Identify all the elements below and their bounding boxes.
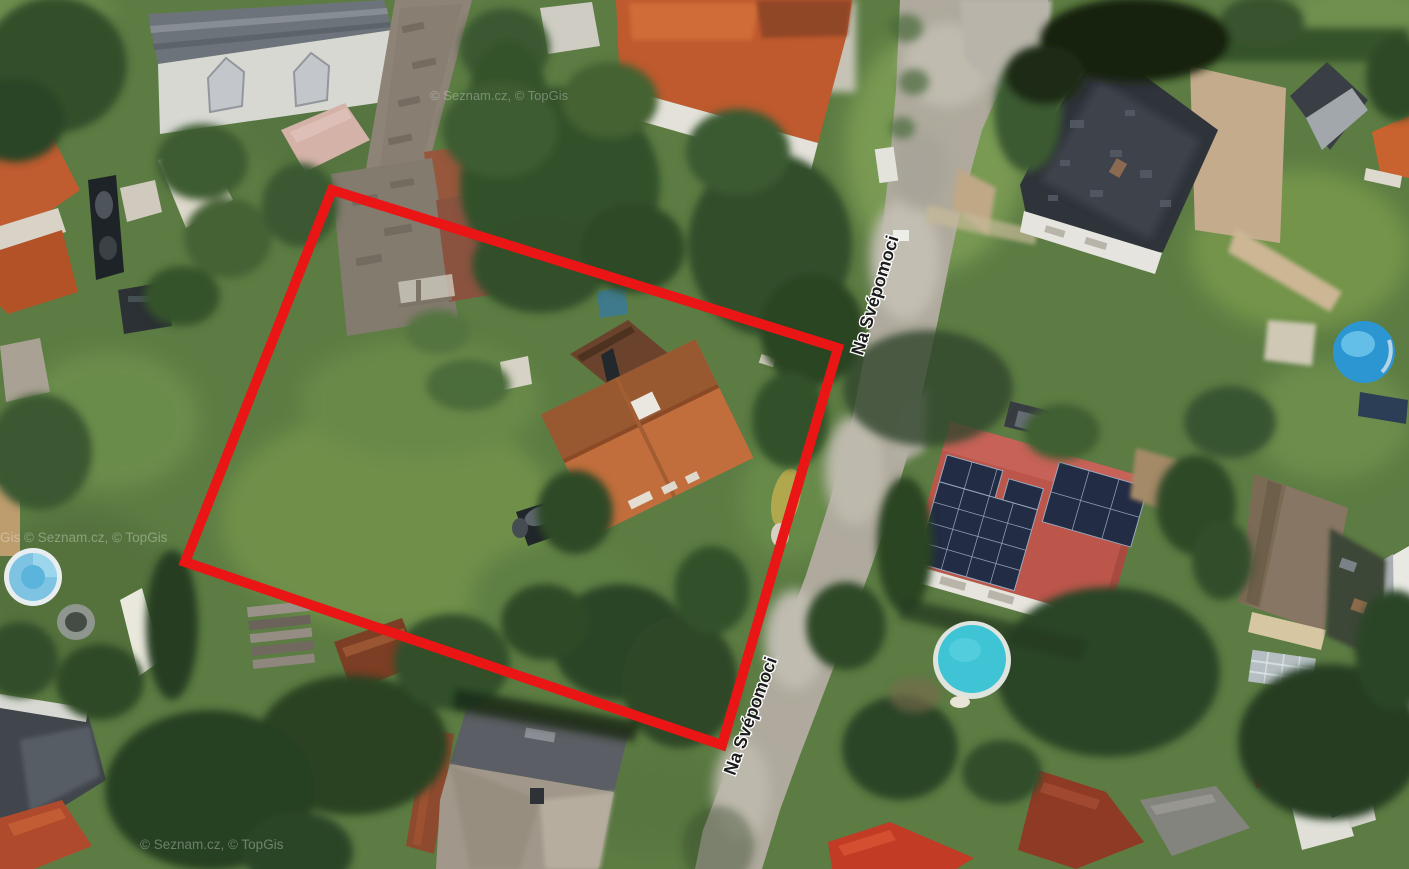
svg-text:Gis © Seznam.cz, © TopGis: Gis © Seznam.cz, © TopGis [0,530,168,545]
svg-text:© Seznam.cz, © TopGis: © Seznam.cz, © TopGis [140,837,284,852]
svg-text:© Seznam.cz, © TopGis: © Seznam.cz, © TopGis [430,88,569,103]
